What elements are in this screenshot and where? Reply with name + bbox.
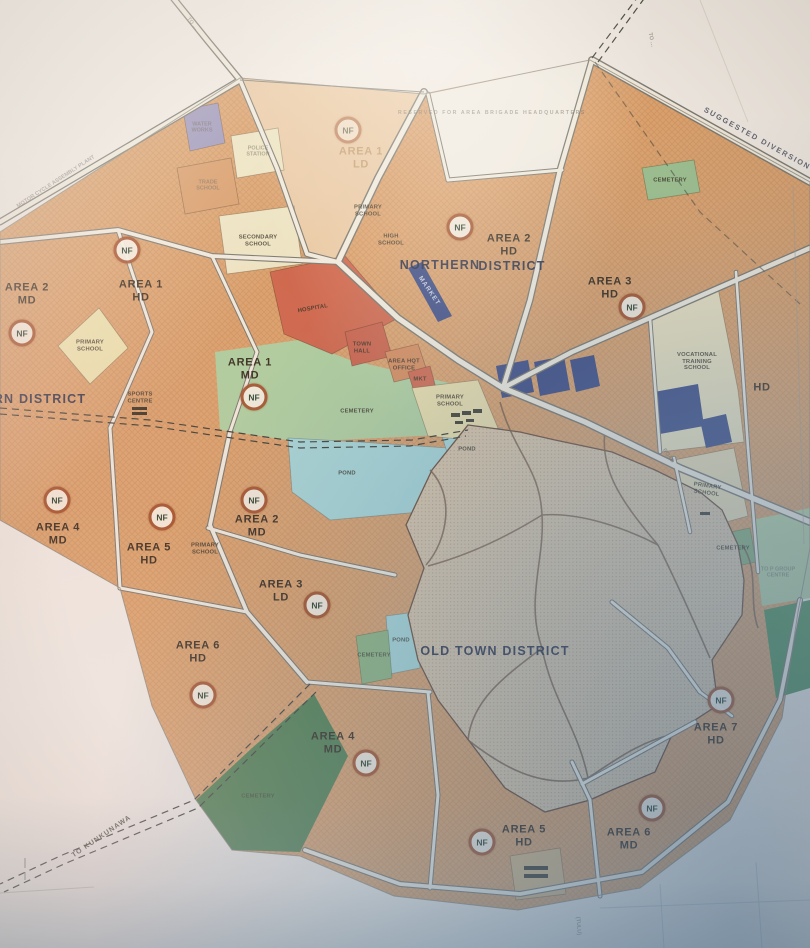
parcel-secondary-school: [219, 206, 302, 274]
parcel-navy-2: [654, 384, 704, 434]
parcel-cemetery-os: [356, 630, 392, 684]
master-plan-map-photo: TO …RESERVED FOR AREA BRIGADE HEADQUARTE…: [0, 0, 810, 948]
parcel-trade-school: [177, 158, 239, 214]
map-svg: [0, 0, 810, 948]
